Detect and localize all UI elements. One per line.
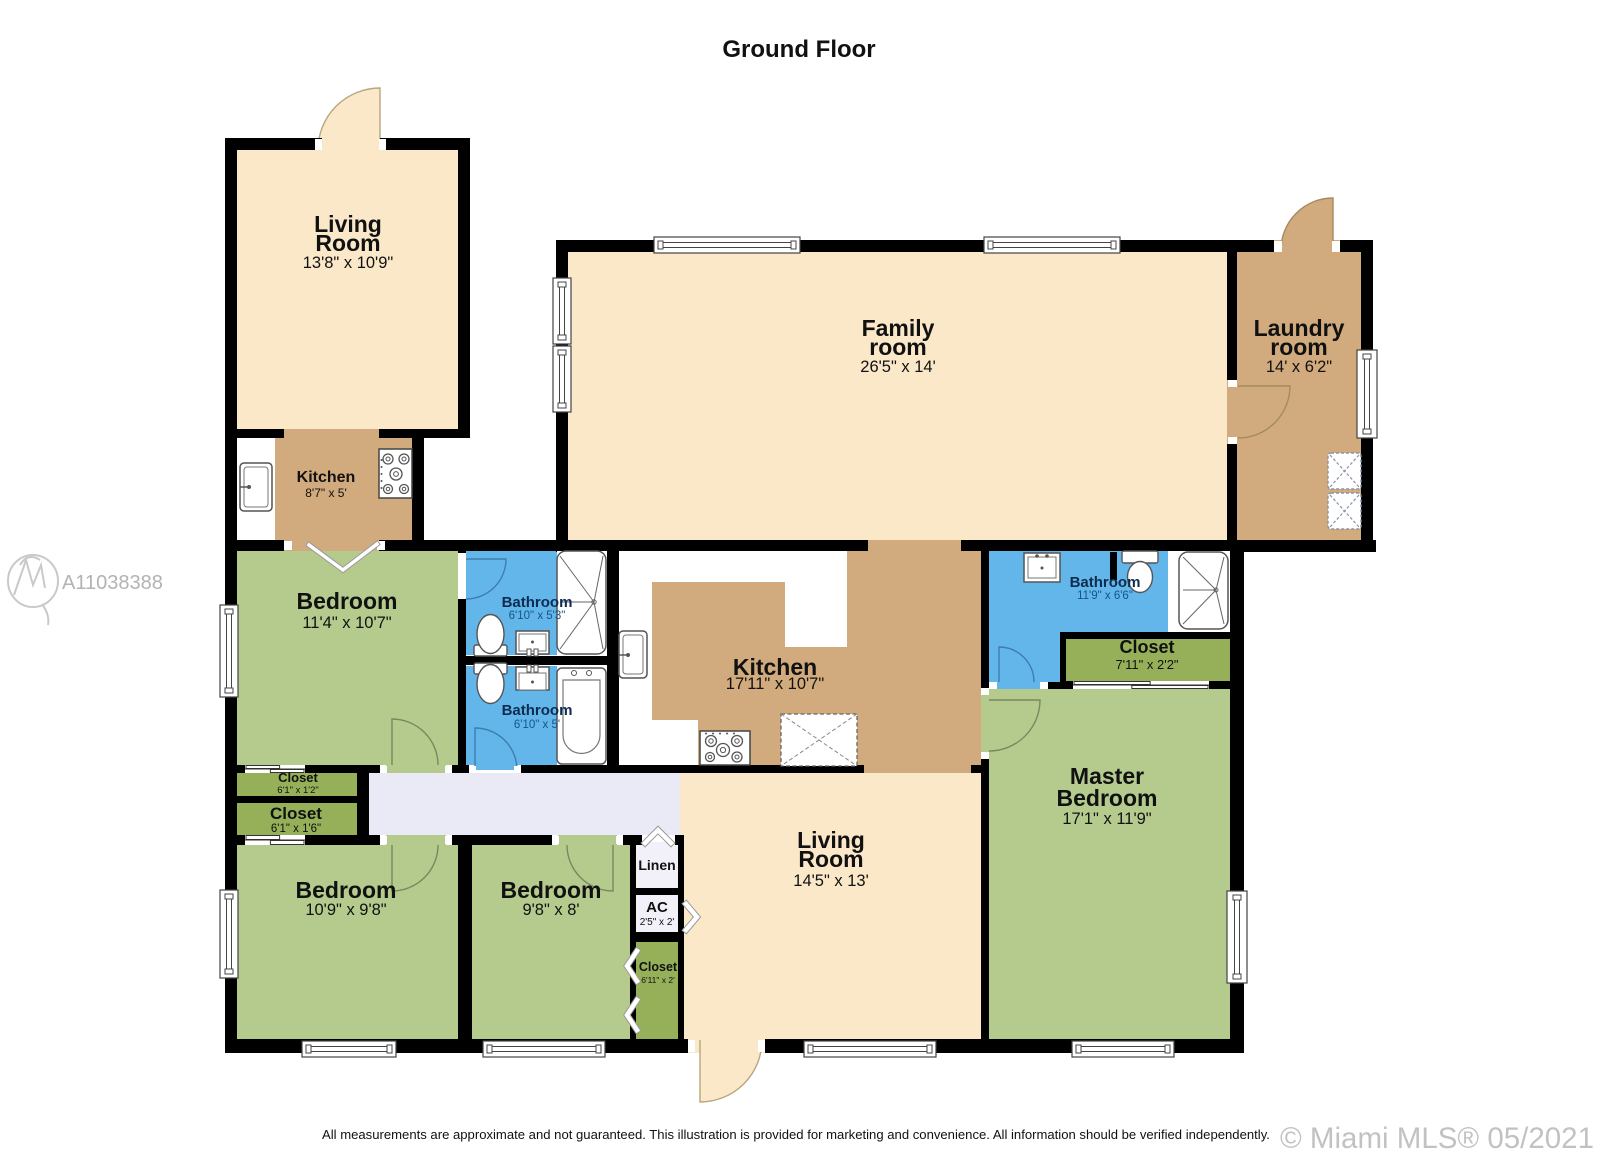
svg-text:Bedroom: Bedroom [1057, 785, 1158, 811]
svg-text:17'11" x 10'7": 17'11" x 10'7" [726, 675, 825, 693]
svg-text:room: room [1270, 334, 1328, 360]
svg-text:Bathroom: Bathroom [502, 594, 573, 611]
svg-text:Bathroom: Bathroom [1070, 574, 1141, 591]
svg-text:Ground Floor: Ground Floor [722, 36, 875, 63]
svg-text:10'9" x 9'8": 10'9" x 9'8" [305, 901, 386, 919]
svg-text:6'1" x 1'2": 6'1" x 1'2" [277, 785, 319, 796]
svg-text:13'8" x 10'9": 13'8" x 10'9" [303, 254, 394, 272]
svg-text:6'11" x 2': 6'11" x 2' [641, 975, 675, 985]
svg-text:Bedroom: Bedroom [297, 588, 398, 614]
svg-text:26'5" x 14': 26'5" x 14' [860, 358, 935, 376]
svg-text:2'5" x 2': 2'5" x 2' [640, 917, 675, 928]
svg-text:© Miami MLS® 05/2021: © Miami MLS® 05/2021 [1280, 1122, 1594, 1155]
svg-text:6'10" x 5'3": 6'10" x 5'3" [509, 610, 566, 622]
svg-text:11'4" x 10'7": 11'4" x 10'7" [302, 614, 391, 632]
svg-text:room: room [869, 334, 927, 360]
svg-text:Closet: Closet [270, 804, 322, 823]
svg-text:17'1" x 11'9": 17'1" x 11'9" [1062, 810, 1151, 828]
svg-text:Room: Room [798, 846, 863, 872]
svg-text:Bedroom: Bedroom [296, 877, 397, 903]
svg-text:Kitchen: Kitchen [297, 469, 356, 486]
svg-text:14' x 6'2": 14' x 6'2" [1266, 358, 1332, 376]
svg-text:Closet: Closet [639, 960, 678, 974]
svg-text:14'5" x 13': 14'5" x 13' [793, 872, 868, 890]
svg-text:6'10" x 5': 6'10" x 5' [514, 719, 560, 731]
svg-text:Closet: Closet [278, 770, 318, 785]
svg-text:A11038388: A11038388 [62, 572, 163, 594]
svg-text:6'1" x 1'6": 6'1" x 1'6" [271, 823, 321, 835]
svg-text:11'9" x 6'6": 11'9" x 6'6" [1077, 590, 1133, 602]
svg-text:Room: Room [315, 230, 380, 256]
svg-text:Linen: Linen [638, 857, 675, 873]
svg-text:Bedroom: Bedroom [501, 877, 602, 903]
svg-text:9'8" x 8': 9'8" x 8' [522, 901, 579, 919]
svg-text:Bathroom: Bathroom [502, 702, 573, 719]
svg-text:All measurements are approxima: All measurements are approximate and not… [322, 1127, 1270, 1142]
svg-text:8'7" x 5': 8'7" x 5' [305, 486, 347, 500]
svg-text:Closet: Closet [1119, 637, 1174, 657]
svg-text:7'11" x 2'2": 7'11" x 2'2" [1115, 657, 1178, 672]
svg-text:AC: AC [646, 899, 668, 916]
